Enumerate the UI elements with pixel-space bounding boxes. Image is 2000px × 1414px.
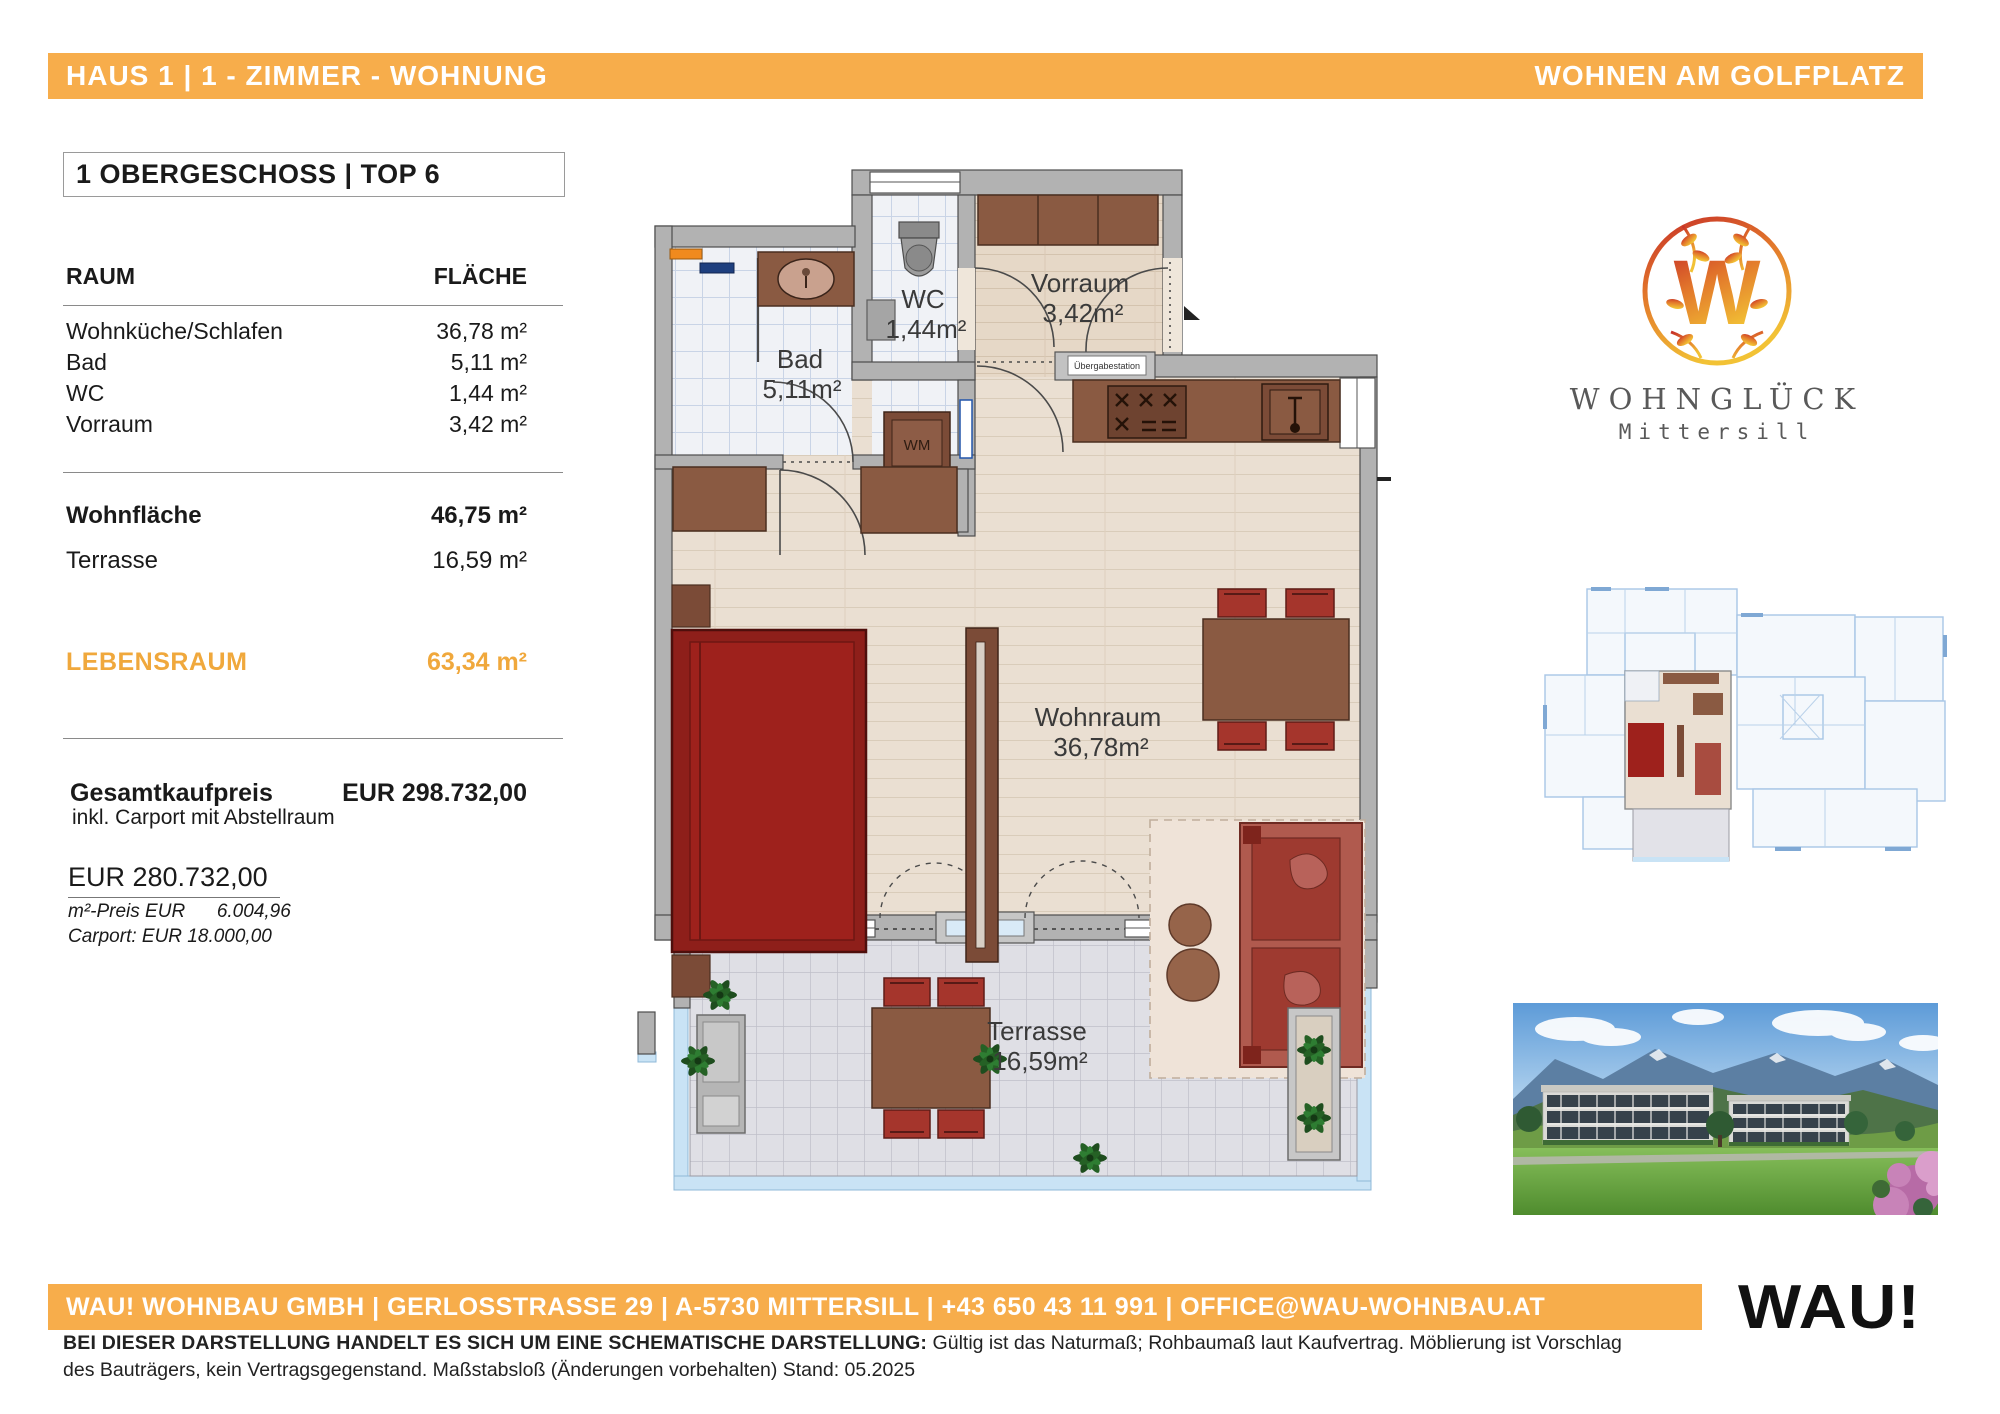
- header-title-right: WOHNEN AM GOLFPLATZ: [1534, 60, 1905, 92]
- room-row-area: 36,78 m²: [287, 318, 527, 345]
- table-header-room: RAUM: [66, 263, 135, 290]
- footer-contact: WAU! WOHNBAU GMBH | GERLOSSTRASSE 29 | A…: [66, 1293, 1545, 1322]
- vorraum-label: Vorraum: [1031, 268, 1129, 298]
- highlighted-unit: [1625, 671, 1731, 862]
- table-divider-mid: [63, 472, 563, 473]
- building-photo: [1513, 1003, 1938, 1215]
- carport-price: Carport: EUR 18.000,00: [68, 926, 272, 948]
- dining-table: [1203, 619, 1349, 720]
- terrasse-plan-label: Terrasse: [987, 1016, 1087, 1046]
- table-divider-top: [63, 305, 563, 306]
- room-row-area: 1,44 m²: [287, 380, 527, 407]
- footer-bar: WAU! WOHNBAU GMBH | GERLOSSTRASSE 29 | A…: [48, 1284, 1702, 1330]
- disclaimer: BEI DIESER DARSTELLUNG HANDELT ES SICH U…: [63, 1330, 1638, 1384]
- table-header-area: FLÄCHE: [327, 263, 527, 290]
- total-price-note: inkl. Carport mit Abstellraum: [72, 806, 335, 830]
- total-price-label: Gesamtkaufpreis: [70, 779, 273, 808]
- room-row-name: Wohnküche/Schlafen: [66, 318, 283, 345]
- wardrobe: [861, 467, 957, 533]
- electro-panel: [960, 400, 972, 458]
- logo-subtitle: Mittersill: [1567, 420, 1867, 444]
- wardrobe: [673, 467, 766, 531]
- lebensraum-label: LEBENSRAUM: [66, 648, 247, 677]
- building-a: [1541, 1085, 1713, 1145]
- wm-label: WM: [904, 437, 931, 454]
- vorraum-area-label: 3,42m²: [1043, 298, 1124, 328]
- header-bar: HAUS 1 | 1 - ZIMMER - WOHNUNG WOHNEN AM …: [48, 53, 1923, 99]
- logo-title: WOHNGLÜCK: [1567, 382, 1867, 416]
- apartment-datasheet: { "header": { "left": "HAUS 1 | 1 - ZIMM…: [0, 0, 2000, 1414]
- wohnglueck-logo-icon: W: [1641, 212, 1793, 370]
- nightstand: [672, 585, 710, 627]
- bad-area-label: 5,11m²: [763, 374, 842, 404]
- terrace-table: [872, 1008, 990, 1108]
- wall-tick: [1377, 477, 1391, 481]
- floorplan-svg: WM Übergabestation: [630, 135, 1420, 1245]
- wc-area-label: 1,44m²: [886, 314, 967, 344]
- total-price-value: EUR 298.732,00: [287, 779, 527, 808]
- terrasse-area-label: 16,59m²: [992, 1046, 1088, 1076]
- wau-logo: WAU!: [1738, 1272, 1921, 1343]
- logo-monogram: W: [1674, 242, 1761, 344]
- lebensraum-value: 63,34 m²: [287, 648, 527, 677]
- nightstand: [672, 955, 710, 997]
- uebergabestation-label: Übergabestation: [1074, 361, 1140, 371]
- side-table: [1167, 949, 1219, 1001]
- terrasse-value: 16,59 m²: [287, 547, 527, 575]
- disclaimer-bold: BEI DIESER DARSTELLUNG HANDELT ES SICH U…: [63, 1332, 927, 1354]
- entrance-marker: [1184, 306, 1200, 320]
- room-row-name: WC: [66, 380, 104, 407]
- wc-label: WC: [901, 284, 944, 314]
- unit-title-box: 1 OBERGESCHOSS | TOP 6: [63, 152, 565, 197]
- room-row-name: Vorraum: [66, 411, 153, 438]
- terrasse-label: Terrasse: [66, 547, 158, 575]
- room-row-name: Bad: [66, 349, 107, 376]
- floor-overview-plan: [1525, 575, 1955, 875]
- sqm-price: m²-Preis EUR 6.004,96: [68, 901, 291, 923]
- wohnraum-area-label: 36,78m²: [1053, 732, 1149, 762]
- unit-title: 1 OBERGESCHOSS | TOP 6: [76, 159, 440, 189]
- wohnflaeche-value: 46,75 m²: [287, 502, 527, 530]
- bad-label: Bad: [777, 344, 823, 374]
- vorraum-cabinets: [978, 195, 1158, 245]
- table-divider-bottom: [63, 738, 563, 739]
- toilet-tank: [899, 222, 939, 238]
- vent-icon: [700, 263, 734, 273]
- wohnraum-label: Wohnraum: [1035, 702, 1162, 732]
- wohnflaeche-label: Wohnfläche: [66, 502, 202, 530]
- base-price: EUR 280.732,00: [68, 862, 280, 898]
- side-table: [1169, 904, 1211, 946]
- building-b: [1727, 1095, 1851, 1146]
- room-row-area: 3,42 m²: [287, 411, 527, 438]
- header-title-left: HAUS 1 | 1 - ZIMMER - WOHNUNG: [66, 60, 548, 92]
- heater-icon: [670, 249, 702, 259]
- room-row-area: 5,11 m²: [287, 349, 527, 376]
